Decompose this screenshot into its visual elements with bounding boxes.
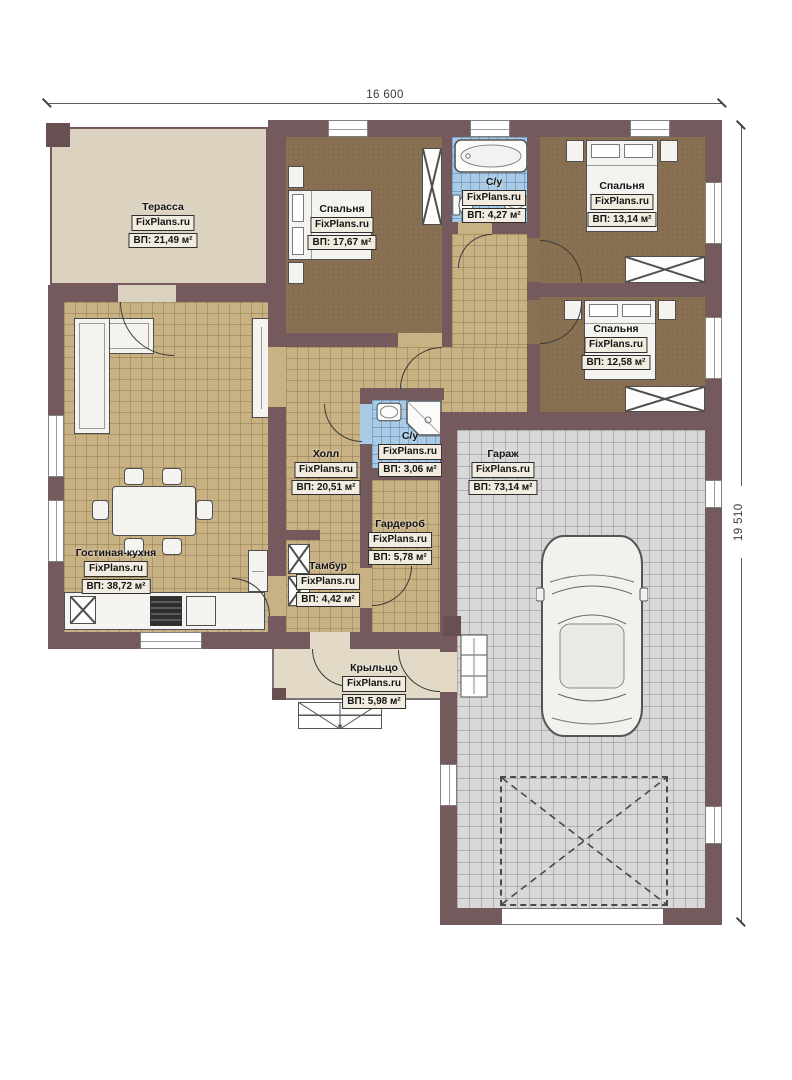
wardrobe-bedroom3	[625, 386, 705, 412]
dimension-line-top	[47, 103, 722, 104]
corner-column-garage	[443, 616, 461, 636]
kitchen-stove	[150, 596, 182, 626]
wardrobe-door-opening	[360, 568, 372, 608]
vestibule-living-opening	[268, 576, 286, 616]
front-door-opening	[310, 632, 350, 649]
room-label-bedroom1: Спальня FixPlans.ru ВП: 17,67 м²	[307, 203, 376, 250]
room-area: ВП: 3,06 м²	[378, 462, 442, 478]
garage-gate-swing-area	[500, 776, 668, 906]
room-label-wardrobe: Гардероб FixPlans.ru ВП: 5,78 м²	[368, 518, 432, 565]
dining-table	[112, 486, 196, 536]
kitchen-dishwasher	[186, 596, 216, 626]
room-label-bedroom3: Спальня FixPlans.ru ВП: 12,58 м²	[581, 323, 650, 370]
tv-cabinet	[252, 318, 269, 418]
dimension-width-label: 16 600	[350, 89, 420, 103]
room-label-vestibule: Тамбур FixPlans.ru ВП: 4,42 м²	[296, 560, 360, 607]
room-area: ВП: 73,14 м²	[468, 480, 537, 496]
room-area: ВП: 5,98 м²	[342, 694, 406, 710]
living-hall-opening	[268, 347, 286, 407]
room-watermark: FixPlans.ru	[84, 561, 148, 577]
floor-plan: 16 600 19 510	[0, 0, 792, 1080]
washbasin-bathroom2	[376, 402, 402, 422]
bathtub	[454, 139, 528, 173]
sofa-vertical	[74, 318, 110, 434]
car	[536, 532, 648, 740]
window-bottom-kitchen	[140, 632, 202, 649]
room-name: Холл	[313, 448, 339, 460]
room-label-bedroom2: Спальня FixPlans.ru ВП: 13,14 м²	[587, 180, 656, 227]
room-name: Гараж	[487, 448, 518, 460]
garage-side-door-opening	[440, 652, 457, 692]
wall-bedroom2-3-divider	[540, 283, 705, 297]
dining-chair	[162, 468, 182, 485]
room-area: ВП: 5,78 м²	[368, 550, 432, 566]
bedroom1-door-opening	[398, 333, 442, 347]
wall-bathroom2-top	[360, 388, 444, 400]
dining-chair	[124, 468, 144, 485]
bedroom2-door-opening	[527, 238, 540, 282]
nightstand	[566, 140, 584, 162]
room-area: ВП: 20,51 м²	[291, 480, 360, 496]
window-right-bedroom3	[705, 317, 722, 379]
dining-chair	[162, 538, 182, 555]
room-area: ВП: 4,42 м²	[296, 592, 360, 608]
wall-house-bottom	[48, 632, 457, 649]
room-watermark: FixPlans.ru	[368, 532, 432, 548]
wall-vestibule-top	[286, 530, 320, 540]
nightstand	[288, 166, 304, 188]
nightstand	[660, 140, 678, 162]
window-right-garage-2	[705, 806, 722, 844]
window-left-living-2	[48, 500, 64, 562]
window-garage-left	[440, 764, 457, 806]
garage-entry-step	[460, 634, 488, 698]
room-name: Крыльцо	[350, 662, 398, 674]
window-right-garage-1	[705, 480, 722, 508]
room-watermark: FixPlans.ru	[378, 444, 442, 460]
dining-chair	[92, 500, 109, 520]
room-name: Тамбур	[309, 560, 347, 572]
room-watermark: FixPlans.ru	[296, 574, 360, 590]
room-area: ВП: 21,49 м²	[128, 233, 197, 249]
room-watermark: FixPlans.ru	[310, 217, 374, 233]
terrace-door-opening	[118, 285, 176, 302]
room-watermark: FixPlans.ru	[590, 194, 654, 210]
window-top-2	[470, 120, 510, 137]
room-area: ВП: 13,14 м²	[587, 212, 656, 228]
vent-shaft-bedroom1	[422, 148, 442, 225]
room-area: ВП: 4,27 м²	[462, 208, 526, 224]
room-area: ВП: 12,58 м²	[581, 355, 650, 371]
room-label-porch: Крыльцо FixPlans.ru ВП: 5,98 м²	[342, 662, 406, 709]
room-watermark: FixPlans.ru	[342, 676, 406, 692]
nightstand	[288, 262, 304, 284]
wall-bedroom1-right	[442, 137, 452, 333]
room-label-hall: Холл FixPlans.ru ВП: 20,51 м²	[291, 448, 360, 495]
wardrobe-bedroom2	[625, 256, 705, 283]
terrace-corner-column	[46, 123, 70, 147]
room-name: Спальня	[599, 180, 644, 192]
room-watermark: FixPlans.ru	[294, 462, 358, 478]
room-name: С/у	[402, 430, 418, 442]
room-watermark: FixPlans.ru	[131, 215, 195, 231]
kitchen-sink	[70, 596, 96, 624]
room-label-garage: Гараж FixPlans.ru ВП: 73,14 м²	[468, 448, 537, 495]
corner-column-porch	[272, 688, 286, 700]
room-name: С/у	[486, 176, 502, 188]
room-area: ВП: 17,67 м²	[307, 235, 376, 251]
dimension-height-label: 19 510	[733, 486, 749, 558]
window-left-living-1	[48, 415, 64, 477]
room-watermark: FixPlans.ru	[471, 462, 535, 478]
room-name: Терасса	[142, 201, 184, 213]
window-top-1	[328, 120, 368, 137]
room-name: Гардероб	[375, 518, 425, 530]
room-watermark: FixPlans.ru	[462, 190, 526, 206]
room-label-living-kitchen: Гостиная-кухня FixPlans.ru ВП: 38,72 м²	[76, 547, 156, 594]
room-name: Гостиная-кухня	[76, 547, 156, 559]
dining-chair	[196, 500, 213, 520]
room-label-terrace: Терасса FixPlans.ru ВП: 21,49 м²	[128, 201, 197, 248]
window-right-bedroom2	[705, 182, 722, 244]
garage-gate-opening	[502, 908, 663, 925]
nightstand	[658, 300, 676, 320]
bathroom1-door-opening	[458, 222, 492, 234]
room-watermark: FixPlans.ru	[584, 337, 648, 353]
room-name: Спальня	[593, 323, 638, 335]
room-name: Спальня	[319, 203, 364, 215]
wall-garage-top	[440, 412, 722, 430]
window-top-3	[630, 120, 670, 137]
room-label-bathroom2: С/у FixPlans.ru ВП: 3,06 м²	[378, 430, 442, 477]
room-area: ВП: 38,72 м²	[81, 579, 150, 595]
bedroom3-door-opening	[527, 300, 540, 344]
room-label-bathroom1: С/у FixPlans.ru ВП: 4,27 м²	[462, 176, 526, 223]
